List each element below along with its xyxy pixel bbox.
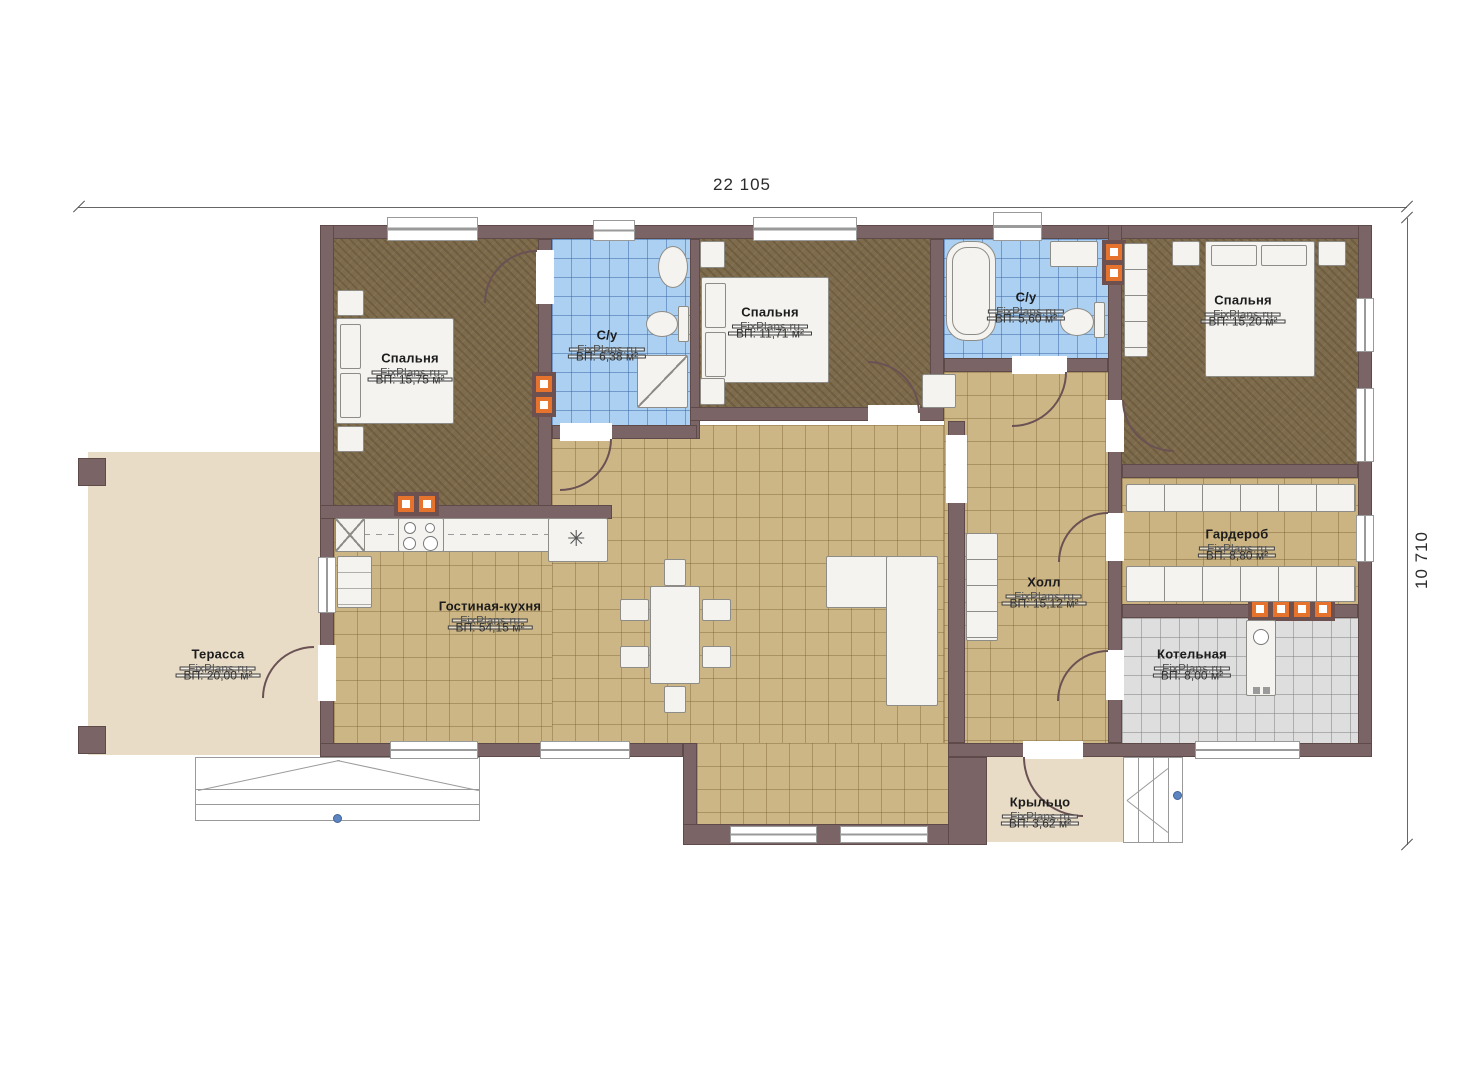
window: [387, 217, 478, 241]
dimension-label-height: 10 710: [1412, 531, 1432, 589]
door-opening: [536, 250, 554, 304]
room-label-bedroom2: Спальня FixPlans.ru ВП: 11,71 м²: [728, 305, 812, 336]
room-area: ВП: 54,15 м²: [448, 626, 533, 630]
window: [1195, 741, 1300, 759]
terrace-post: [78, 458, 106, 486]
passage-opening: [946, 435, 967, 503]
dimension-label-width: 22 105: [713, 175, 771, 195]
window: [840, 826, 928, 843]
chair: [702, 646, 731, 668]
fridge: [337, 556, 372, 608]
vent-icon: [1106, 265, 1122, 281]
burner-icon: [404, 522, 416, 534]
room-name: С/у: [568, 328, 646, 343]
living-bay-floor: [697, 743, 948, 824]
stair-edge: [1127, 800, 1169, 833]
toilet-tank: [678, 306, 689, 342]
door-opening: [1106, 513, 1124, 561]
wall: [320, 505, 612, 519]
vent-shaft: [532, 372, 556, 417]
window: [390, 741, 478, 759]
room-area: ВП: 3,62 м²: [1001, 822, 1079, 826]
vent-shaft: [394, 492, 439, 516]
toilet-tank: [1094, 302, 1105, 338]
boiler-floor: [1122, 618, 1358, 743]
burner-icon: [403, 537, 416, 550]
window: [753, 217, 857, 241]
vent-icon: [1252, 601, 1268, 617]
vent-icon: [1106, 244, 1122, 260]
door-opening: [1106, 650, 1124, 700]
burner-icon: [425, 523, 435, 533]
porch-stairs: [1123, 757, 1183, 843]
vent-icon: [536, 397, 552, 413]
room-label-bedroom3: Спальня FixPlans.ru ВП: 15,20 м²: [1201, 293, 1286, 324]
chair: [702, 599, 731, 621]
burner-icon: [423, 536, 438, 551]
vent-icon: [1315, 601, 1331, 617]
room-name: Котельная: [1153, 647, 1231, 662]
stair-edge: [198, 760, 340, 791]
boiler-unit: [1246, 620, 1276, 696]
pillow: [705, 283, 726, 328]
room-name: Спальня: [728, 305, 812, 320]
window: [1356, 388, 1374, 462]
floor-plan: 22 105 10 710: [0, 0, 1474, 1080]
wall: [948, 743, 1372, 757]
stair-edge: [337, 760, 479, 791]
chair: [620, 646, 649, 668]
wardrobe-shelf: [1126, 566, 1356, 602]
pillow: [1261, 245, 1307, 266]
window: [318, 557, 336, 613]
nightstand: [1318, 241, 1346, 266]
room-name: Гостиная-кухня: [439, 599, 541, 614]
room-name: Крыльцо: [1001, 795, 1079, 810]
window: [593, 220, 635, 241]
pillow: [1211, 245, 1257, 266]
window: [993, 212, 1042, 241]
room-area: ВП: 5,60 м²: [987, 317, 1065, 321]
nightstand: [1172, 241, 1200, 266]
room-area: ВП: 8,00 м²: [1153, 674, 1231, 678]
nightstand: [700, 378, 725, 405]
window: [1356, 515, 1374, 562]
room-name: Спальня: [368, 351, 453, 366]
room-name: Спальня: [1201, 293, 1286, 308]
door-opening: [318, 645, 336, 701]
bathtub-inner: [952, 247, 990, 335]
room-area: ВП: 6,38 м²: [568, 355, 646, 359]
window: [540, 741, 630, 759]
toilet-bowl: [646, 311, 678, 337]
nightstand: [337, 426, 364, 452]
sink: [658, 246, 688, 288]
chair: [620, 599, 649, 621]
room-label-living: Гостиная-кухня FixPlans.ru ВП: 54,15 м²: [439, 599, 541, 630]
wardrobe-shelf: [1126, 484, 1356, 512]
window: [730, 826, 817, 843]
boiler-valve: [1263, 687, 1270, 694]
room-label-hall: Холл FixPlans.ru ВП: 15,12 м²: [1002, 575, 1087, 606]
window: [1356, 298, 1374, 352]
hall-cabinet: [966, 533, 998, 641]
pillow: [340, 324, 361, 369]
stairs-marker-dot: [1173, 791, 1182, 800]
room-name: Терасса: [176, 647, 261, 662]
room-label-boiler: Котельная FixPlans.ru ВП: 8,00 м²: [1153, 647, 1231, 678]
room-label-wardrobe: Гардероб FixPlans.ru ВП: 8,80 м²: [1198, 527, 1276, 558]
closet: [1124, 243, 1148, 357]
wall: [948, 757, 987, 845]
room-label-bathroom1: С/у FixPlans.ru ВП: 6,38 м²: [568, 328, 646, 359]
pillow: [705, 332, 726, 377]
kitchen-sink-star-icon: ✳: [567, 528, 585, 550]
dining-table: [650, 586, 700, 684]
room-label-terrace: Терасса FixPlans.ru ВП: 20,00 м²: [176, 647, 261, 678]
room-name: Холл: [1002, 575, 1087, 590]
vent-icon: [419, 496, 435, 512]
vent-icon: [398, 496, 414, 512]
room-label-bathroom2: С/у FixPlans.ru ВП: 5,60 м²: [987, 290, 1065, 321]
dimension-line-top: [78, 207, 1407, 208]
room-area: ВП: 15,75 м²: [368, 378, 453, 382]
vent-icon: [1294, 601, 1310, 617]
chair: [664, 686, 686, 713]
room-area: ВП: 8,80 м²: [1198, 554, 1276, 558]
room-name: Гардероб: [1198, 527, 1276, 542]
room-area: ВП: 15,12 м²: [1002, 602, 1087, 606]
shower: [637, 355, 688, 408]
dishwasher: [335, 518, 365, 552]
stove: [398, 518, 444, 552]
vent-shaft: [1102, 240, 1126, 285]
room-label-bedroom1: Спальня FixPlans.ru ВП: 15,75 м²: [368, 351, 453, 382]
terrace-floor: [88, 452, 330, 755]
nightstand: [337, 290, 364, 316]
vent-icon: [1273, 601, 1289, 617]
dimension-line-right: [1407, 218, 1408, 845]
stairs-marker-dot: [333, 814, 342, 823]
door-opening: [1106, 400, 1124, 452]
room-area: ВП: 20,00 м²: [176, 674, 261, 678]
sofa: [886, 556, 938, 706]
wall: [683, 824, 987, 845]
vent-icon: [536, 376, 552, 392]
room-area: ВП: 15,20 м²: [1201, 320, 1286, 324]
boiler-valve: [1253, 687, 1260, 694]
nightstand: [700, 241, 725, 268]
wall: [1122, 464, 1358, 478]
pillow: [340, 373, 361, 418]
terrace-post: [78, 726, 106, 754]
cabinet: [922, 374, 956, 408]
room-area: ВП: 11,71 м²: [728, 332, 812, 336]
room-label-porch: Крыльцо FixPlans.ru ВП: 3,62 м²: [1001, 795, 1079, 826]
sink: [1050, 241, 1098, 267]
stair-edge: [1127, 768, 1169, 801]
chair: [664, 559, 686, 586]
boiler-dial-icon: [1253, 629, 1269, 645]
room-name: С/у: [987, 290, 1065, 305]
terrace-stairs: [195, 757, 480, 821]
